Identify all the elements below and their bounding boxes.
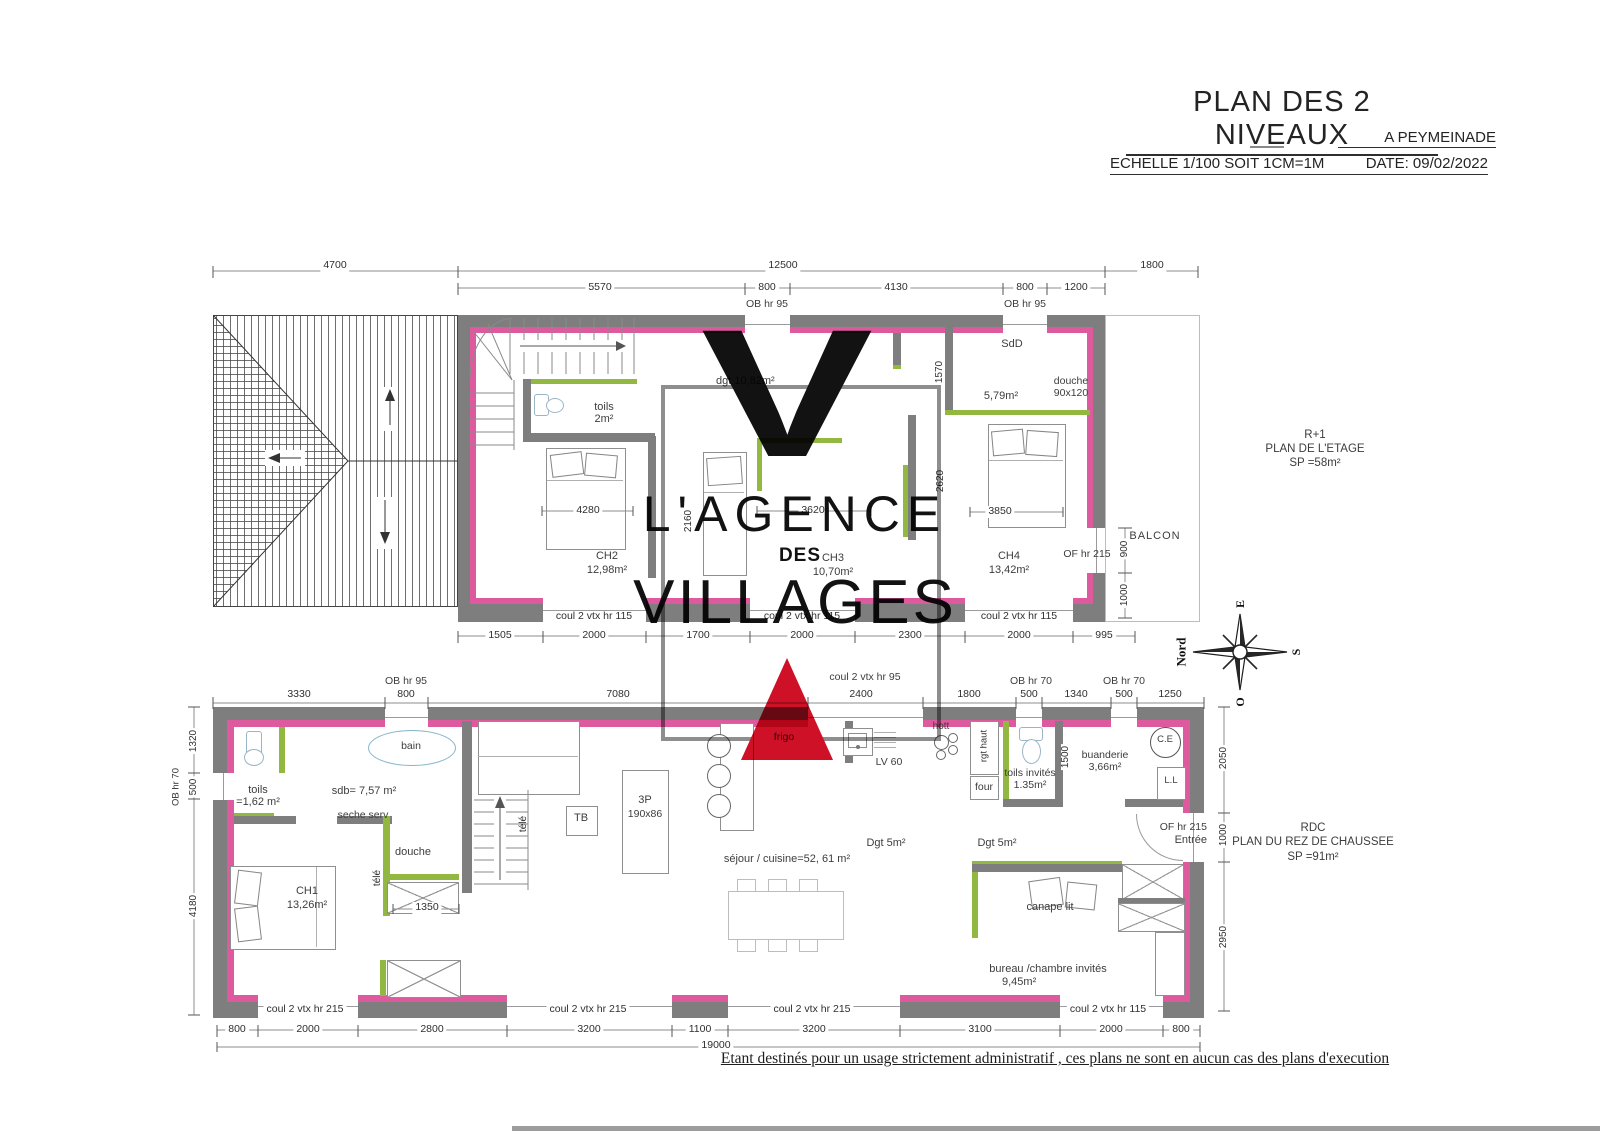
dimension-line	[1118, 520, 1132, 626]
closet-icon	[1122, 864, 1184, 900]
toilet-icon	[244, 749, 264, 766]
window-label: coul 2 vtx hr 215	[770, 1004, 853, 1016]
closet-icon	[387, 960, 461, 998]
level-desc: PLAN DE L'ETAGE	[1265, 443, 1364, 456]
wall	[234, 816, 296, 824]
dim: 800	[1169, 1024, 1193, 1036]
window-label: coul 2 vtx hr 215	[263, 1004, 346, 1016]
window-opening	[213, 773, 234, 800]
counter-line	[874, 747, 896, 748]
burner-icon	[936, 750, 946, 760]
dim: 3850	[985, 506, 1014, 518]
sofabed-label: canape lit	[1026, 901, 1073, 914]
counter-line	[874, 737, 896, 738]
pillow-icon	[550, 451, 585, 478]
compass-rose: Nord E S O	[1165, 596, 1315, 711]
scale-date-line: ECHELLE 1/100 SOIT 1CM=1M DATE: 09/02/20…	[1110, 155, 1488, 175]
wall	[972, 872, 978, 938]
wall	[279, 727, 285, 773]
shower-label: douche	[1054, 375, 1088, 387]
dim: 500	[189, 777, 199, 798]
compass-east-label: E	[1233, 600, 1247, 608]
table-icon	[728, 891, 844, 940]
disclaimer-text: Etant destinés pour un usage strictement…	[705, 1050, 1405, 1068]
dim: 2300	[895, 630, 924, 642]
room-label-ch1: CH1	[296, 885, 318, 898]
scan-edge	[512, 1126, 1600, 1131]
closet-line	[478, 756, 578, 757]
tb-label: TB	[574, 812, 588, 825]
dim: 995	[1092, 630, 1116, 642]
room-label-sdb: sdb= 7,57 m²	[332, 785, 397, 798]
wall	[1190, 707, 1204, 1018]
level-area: SP =58m²	[1289, 457, 1340, 470]
pillow-icon	[234, 906, 262, 943]
wall	[1003, 721, 1009, 803]
door-label: OF hr 215	[1160, 821, 1207, 833]
room-label-dgt: dgt 10,82m²	[716, 375, 775, 388]
bed-line	[989, 460, 1063, 461]
roof-hatch	[213, 315, 458, 607]
dim: 4180	[189, 893, 199, 919]
oven-label: four	[975, 781, 993, 793]
sofa-size: 190x86	[628, 808, 662, 820]
sink-drain	[856, 745, 860, 749]
dim: 1800	[954, 689, 983, 701]
pillow-icon	[584, 453, 618, 479]
room-label-sdd: SdD	[1001, 338, 1022, 351]
room-area: 13,26m²	[287, 899, 327, 912]
window-opening	[385, 707, 428, 727]
dim: 1800	[1137, 260, 1166, 272]
wall	[213, 1002, 1204, 1018]
room-area: 2m²	[595, 413, 614, 426]
room-area: 13,42m²	[989, 564, 1029, 577]
dim: 500	[1017, 689, 1041, 701]
wall	[527, 379, 637, 384]
staircase	[468, 318, 638, 450]
wall	[1093, 315, 1105, 622]
cabinet-label: rgt haut	[979, 728, 989, 764]
pillow-icon	[991, 429, 1025, 457]
dimension-line	[968, 507, 1065, 517]
stool-icon	[707, 794, 731, 818]
location-label: A PEYMEINADE	[1338, 129, 1496, 148]
dim: 7080	[603, 689, 632, 701]
stool-icon	[707, 764, 731, 788]
dim: 2050	[1219, 745, 1229, 771]
chair-icon	[737, 939, 756, 952]
chair-icon	[799, 879, 818, 892]
fridge-label: frigo	[774, 731, 794, 743]
wall	[908, 415, 916, 540]
dim: 900	[1120, 539, 1130, 560]
room-area: =1,62 m²	[236, 796, 280, 809]
window-opening	[1016, 707, 1042, 727]
sofa-3p	[622, 770, 669, 874]
dim: 12500	[765, 260, 800, 272]
bed-line	[547, 480, 623, 481]
wall	[234, 813, 274, 816]
dim: 4700	[320, 260, 349, 272]
chair-icon	[799, 939, 818, 952]
water-heater-label: C.E	[1157, 735, 1173, 746]
staircase	[470, 790, 532, 890]
window-label: coul 2 vtx hr 115	[761, 611, 843, 623]
dim: 2000	[1004, 630, 1033, 642]
room-label-ch2: CH2	[596, 550, 618, 563]
dim: 1500	[1061, 744, 1071, 770]
wall	[893, 365, 901, 369]
dim: 2000	[1096, 1024, 1125, 1036]
wall	[648, 436, 656, 578]
opening-label: OB hr 70	[1010, 675, 1052, 687]
level-desc: PLAN DU REZ DE CHAUSSEE	[1232, 836, 1394, 849]
furniture	[1155, 932, 1185, 996]
level-name: R+1	[1304, 429, 1325, 442]
wall	[227, 720, 234, 1002]
chair-icon	[768, 879, 787, 892]
pillow-icon	[706, 456, 743, 486]
room-label-balcon: BALCON	[1129, 530, 1180, 543]
entry-label: Entrée	[1175, 834, 1207, 847]
room-area: 12,98m²	[587, 564, 627, 577]
window-opening	[1111, 707, 1137, 727]
dim: 2160	[684, 508, 694, 534]
room-area: 1.35m²	[1014, 779, 1047, 791]
dryer-label: seche serv	[338, 809, 389, 821]
window-opening	[1003, 315, 1047, 333]
dim: 1350	[412, 902, 441, 914]
washer-label: L.L	[1164, 776, 1177, 787]
room-label-toils: toils	[248, 784, 268, 797]
closet-icon	[1118, 903, 1185, 932]
room-label-sejour: séjour / cuisine=52, 61 m²	[724, 853, 850, 866]
dim: 800	[1013, 282, 1037, 294]
window-label: coul 2 vtx hr 115	[978, 611, 1060, 623]
chair-icon	[737, 879, 756, 892]
dim: 2400	[846, 689, 875, 701]
hall-label: Dgt 5m²	[977, 837, 1016, 850]
wall	[383, 874, 459, 880]
floor-plan-document: PLAN DES 2 NIVEAUX A PEYMEINADE ECHELLE …	[0, 0, 1600, 1131]
dim: 800	[225, 1024, 249, 1036]
room-area: 3,66m²	[1089, 761, 1122, 773]
dim: 5570	[585, 282, 614, 294]
dim: 1200	[1061, 282, 1090, 294]
dim: 1570	[935, 359, 945, 385]
dim: 4130	[881, 282, 910, 294]
pillow-icon	[234, 870, 262, 907]
dim: 2800	[417, 1024, 446, 1036]
tv-label: télé	[373, 868, 383, 888]
logo-line2: DES	[779, 546, 821, 565]
wall	[213, 995, 1204, 1002]
dim: 800	[394, 689, 418, 701]
dim: 3200	[799, 1024, 828, 1036]
wall	[893, 333, 901, 365]
window-opening	[745, 315, 790, 333]
dim: 1000	[1120, 582, 1130, 608]
window-label: coul 2 vtx hr 115	[1067, 1004, 1149, 1016]
stool-icon	[707, 734, 731, 758]
window-label: coul 2 vtx hr 115	[553, 611, 635, 623]
dimension-line	[205, 266, 1205, 278]
opening-label: OB hr 95	[385, 675, 427, 687]
divider	[1250, 146, 1284, 148]
compass-south-label: S	[1289, 648, 1303, 655]
dim: 3330	[284, 689, 313, 701]
dim: 2000	[579, 630, 608, 642]
dim: 500	[1112, 689, 1136, 701]
compass-north-label: Nord	[1174, 637, 1189, 667]
wall	[1125, 799, 1183, 807]
compass-west-label: O	[1233, 697, 1247, 706]
dim: 2000	[293, 1024, 322, 1036]
room-label-ch4: CH4	[998, 550, 1020, 563]
bath-label: bain	[401, 740, 421, 752]
wall	[903, 465, 908, 537]
bed-line	[704, 492, 744, 493]
opening-label: OB hr 70	[1103, 675, 1145, 687]
dim: 1505	[485, 630, 514, 642]
dim: 2000	[787, 630, 816, 642]
closet-icon	[478, 721, 580, 795]
hall-label: Dgt 5m²	[866, 837, 905, 850]
door-label: OF hr 215	[1063, 548, 1110, 560]
dim: 800	[755, 282, 779, 294]
wall	[523, 433, 655, 442]
dim: 1320	[189, 728, 199, 754]
burner-icon	[948, 745, 958, 755]
opening-label: OB hr 70	[171, 766, 181, 808]
dim: 2950	[1219, 924, 1229, 950]
dim: 3200	[574, 1024, 603, 1036]
chair-icon	[768, 939, 787, 952]
pillow-icon	[1025, 430, 1059, 457]
wall	[945, 327, 953, 415]
toilet-icon	[546, 398, 564, 413]
window-opening	[808, 707, 923, 727]
wall	[972, 861, 1122, 864]
scale-label: ECHELLE 1/100 SOIT 1CM=1M	[1110, 155, 1324, 172]
wall	[1003, 799, 1063, 807]
toilet-icon	[1022, 739, 1041, 764]
dishwasher-label: LV 60	[876, 756, 903, 768]
dim: 3620	[798, 505, 827, 517]
opening-label: coul 2 vtx hr 95	[829, 671, 900, 683]
wall	[945, 410, 1090, 415]
burner-icon	[948, 733, 958, 743]
shower-size: 90x120	[1054, 387, 1088, 399]
room-area: 10,70m²	[813, 566, 853, 579]
opening-label: OB hr 95	[1004, 298, 1046, 310]
sofa-label: 3P	[638, 794, 651, 807]
level-area: SP =91m²	[1287, 851, 1338, 864]
wall	[972, 864, 1122, 872]
wall	[213, 707, 227, 1018]
opening-label: OB hr 95	[746, 298, 788, 310]
window-label: coul 2 vtx hr 215	[546, 1004, 629, 1016]
wall	[380, 960, 386, 996]
room-label-ch3: CH3	[822, 552, 844, 565]
dim: 1100	[686, 1024, 715, 1036]
room-label-toils: toils	[594, 401, 614, 414]
room-label-buanderie: buanderie	[1082, 749, 1129, 761]
date-label: DATE: 09/02/2022	[1366, 155, 1488, 172]
dim: 1700	[683, 630, 712, 642]
shower-label: douche	[395, 846, 431, 859]
counter-line	[874, 732, 896, 733]
dim: 4280	[573, 505, 602, 517]
level-name: RDC	[1301, 822, 1326, 835]
hood-label: hott	[933, 721, 950, 733]
burner-icon	[934, 735, 949, 750]
wall	[523, 379, 531, 439]
room-area: 5,79m²	[984, 390, 1018, 403]
room-label-bureau: bureau /chambre invités	[989, 963, 1106, 976]
dim: 1000	[1219, 822, 1229, 848]
dim: 2620	[936, 468, 946, 494]
counter-line	[874, 742, 896, 743]
dim: 3100	[965, 1024, 994, 1036]
dim: 1340	[1061, 689, 1090, 701]
wall	[757, 443, 762, 491]
wall	[757, 438, 842, 443]
room-area: 9,45m²	[1002, 976, 1036, 989]
room-label-toils-invites: toils invités	[1004, 767, 1055, 779]
tv-label: télé	[519, 814, 529, 834]
